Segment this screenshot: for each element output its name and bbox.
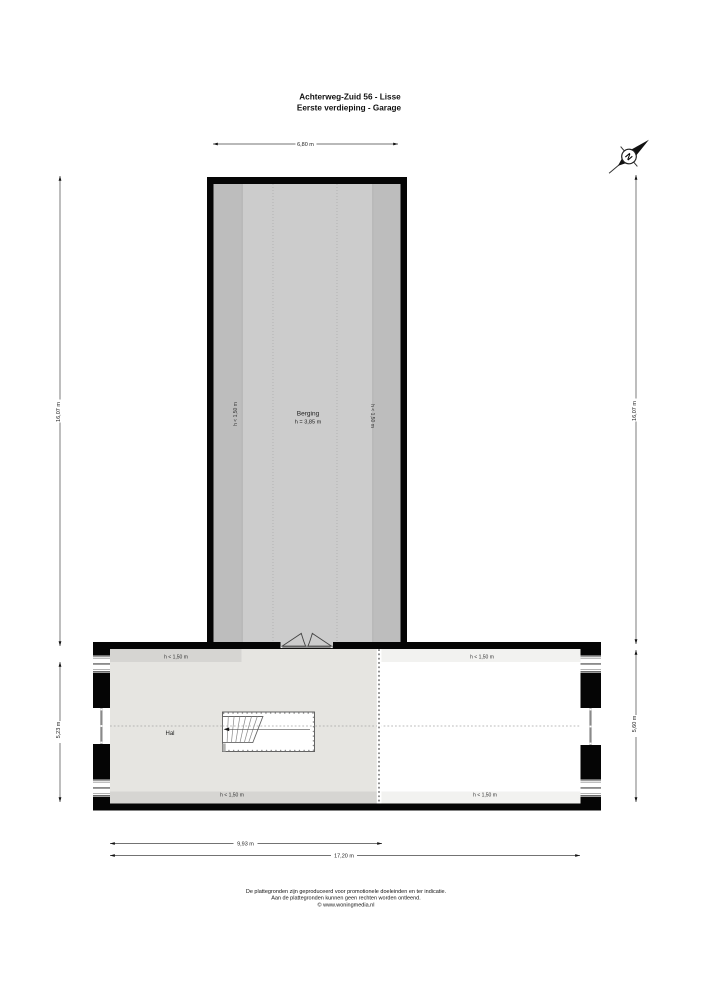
svg-text:16,07 m: 16,07 m [632, 401, 638, 421]
svg-text:h < 1,50 m: h < 1,50 m [369, 404, 375, 428]
svg-text:9,93 m: 9,93 m [237, 842, 254, 848]
svg-text:Berging: Berging [297, 411, 320, 418]
svg-text:5,23 m: 5,23 m [56, 721, 62, 738]
svg-text:h < 1,50 m: h < 1,50 m [470, 655, 494, 661]
svg-text:© www.woningmedia.nl: © www.woningmedia.nl [318, 901, 375, 908]
svg-text:5,60 m: 5,60 m [632, 715, 638, 732]
svg-text:h = 3,85 m: h = 3,85 m [295, 420, 322, 426]
svg-text:17,20 m: 17,20 m [334, 854, 354, 860]
svg-text:Aan de plattegronden kunnen ge: Aan de plattegronden kunnen geen rechten… [271, 896, 421, 902]
svg-text:16,07 m: 16,07 m [56, 402, 62, 422]
svg-text:De plattegronden zijn geproduc: De plattegronden zijn geproduceerd voor … [246, 889, 447, 895]
svg-text:6,80 m: 6,80 m [297, 142, 314, 148]
svg-text:h < 1,50 m: h < 1,50 m [164, 655, 188, 661]
svg-text:h < 1,50 m: h < 1,50 m [473, 793, 497, 799]
svg-text:Achterweg-Zuid 56 - Lisse: Achterweg-Zuid 56 - Lisse [299, 93, 401, 102]
svg-text:h < 1,50 m: h < 1,50 m [233, 402, 239, 426]
svg-text:Eerste verdieping - Garage: Eerste verdieping - Garage [297, 104, 402, 113]
svg-text:Hal: Hal [165, 731, 174, 737]
svg-text:h < 1,50 m: h < 1,50 m [220, 793, 244, 799]
